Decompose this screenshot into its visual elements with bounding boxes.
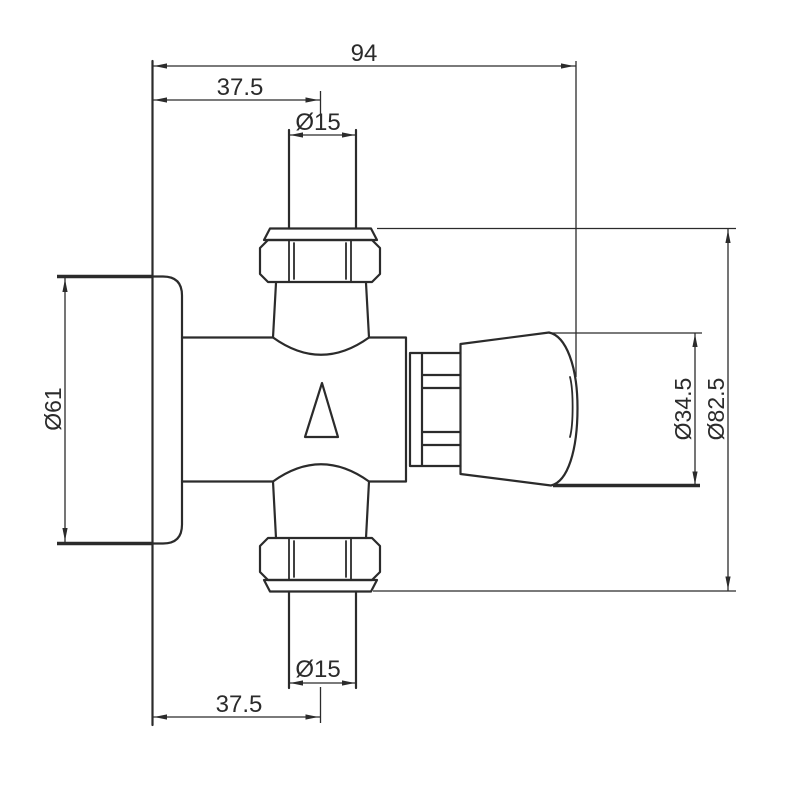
arrowhead-bottom bbox=[62, 528, 67, 541]
arrowhead-left bbox=[154, 97, 167, 102]
dim-label-overall-dia: Ø82.5 bbox=[703, 378, 729, 441]
dimension-bottom-pipe-diameter: Ø15 bbox=[289, 656, 356, 686]
arrowhead-right bbox=[561, 63, 574, 68]
control-knob bbox=[461, 333, 578, 486]
cartridge-steps bbox=[410, 353, 461, 466]
arrowhead-top bbox=[62, 279, 67, 292]
body-outline bbox=[182, 338, 406, 482]
dim-label-top-pipe-dia: Ø15 bbox=[295, 109, 340, 136]
valve-technical-drawing: 94 37.5 Ø15 Ø61 Ø34.5 Ø82.5 bbox=[0, 0, 788, 800]
arrowhead-bottom bbox=[692, 472, 697, 485]
dim-label-flange-dia: Ø61 bbox=[40, 387, 66, 430]
arrowhead-left bbox=[154, 63, 167, 68]
top-bell bbox=[273, 283, 369, 355]
top-pipe bbox=[289, 130, 356, 229]
dim-label-knob-dia: Ø34.5 bbox=[670, 378, 696, 441]
cartridge-stem bbox=[410, 353, 461, 466]
dimension-top-offset: 37.5 bbox=[153, 74, 321, 114]
dim-label-bottom-offset: 37.5 bbox=[216, 691, 263, 718]
knob-outline bbox=[461, 333, 578, 486]
dimension-flange-diameter: Ø61 bbox=[40, 277, 152, 544]
bottom-port bbox=[260, 464, 380, 688]
drawing-sheet: 94 37.5 Ø15 Ø61 Ø34.5 Ø82.5 bbox=[0, 0, 788, 800]
arrowhead-right bbox=[342, 680, 355, 685]
arrowhead-left bbox=[154, 714, 167, 719]
knob-face-edge bbox=[570, 377, 573, 437]
arrowhead-right bbox=[342, 132, 355, 137]
arrowhead-bottom bbox=[725, 577, 730, 590]
arrowhead-right bbox=[306, 714, 319, 719]
dim-label-top-offset: 37.5 bbox=[217, 74, 264, 101]
dim-label-bottom-pipe-dia: Ø15 bbox=[295, 656, 340, 683]
arrowhead-right bbox=[306, 97, 319, 102]
arrowhead-top bbox=[725, 230, 730, 243]
top-washer bbox=[264, 229, 377, 241]
top-nut-facets bbox=[289, 240, 351, 282]
flow-arrow-icon bbox=[305, 383, 338, 437]
bottom-bell bbox=[273, 464, 369, 538]
dim-label-overall-width: 94 bbox=[351, 40, 378, 67]
valve-body bbox=[182, 338, 406, 482]
flange-outline bbox=[153, 277, 183, 544]
bottom-nut-outline bbox=[260, 538, 380, 580]
bottom-washer bbox=[264, 580, 377, 592]
wall-flange bbox=[153, 277, 183, 544]
top-port bbox=[260, 130, 380, 355]
top-nut-outline bbox=[260, 240, 380, 282]
bottom-nut-facets bbox=[289, 538, 351, 580]
arrowhead-top bbox=[692, 334, 697, 347]
dimension-bottom-offset: 37.5 bbox=[153, 687, 321, 723]
dimension-top-pipe-diameter: Ø15 bbox=[289, 109, 356, 138]
